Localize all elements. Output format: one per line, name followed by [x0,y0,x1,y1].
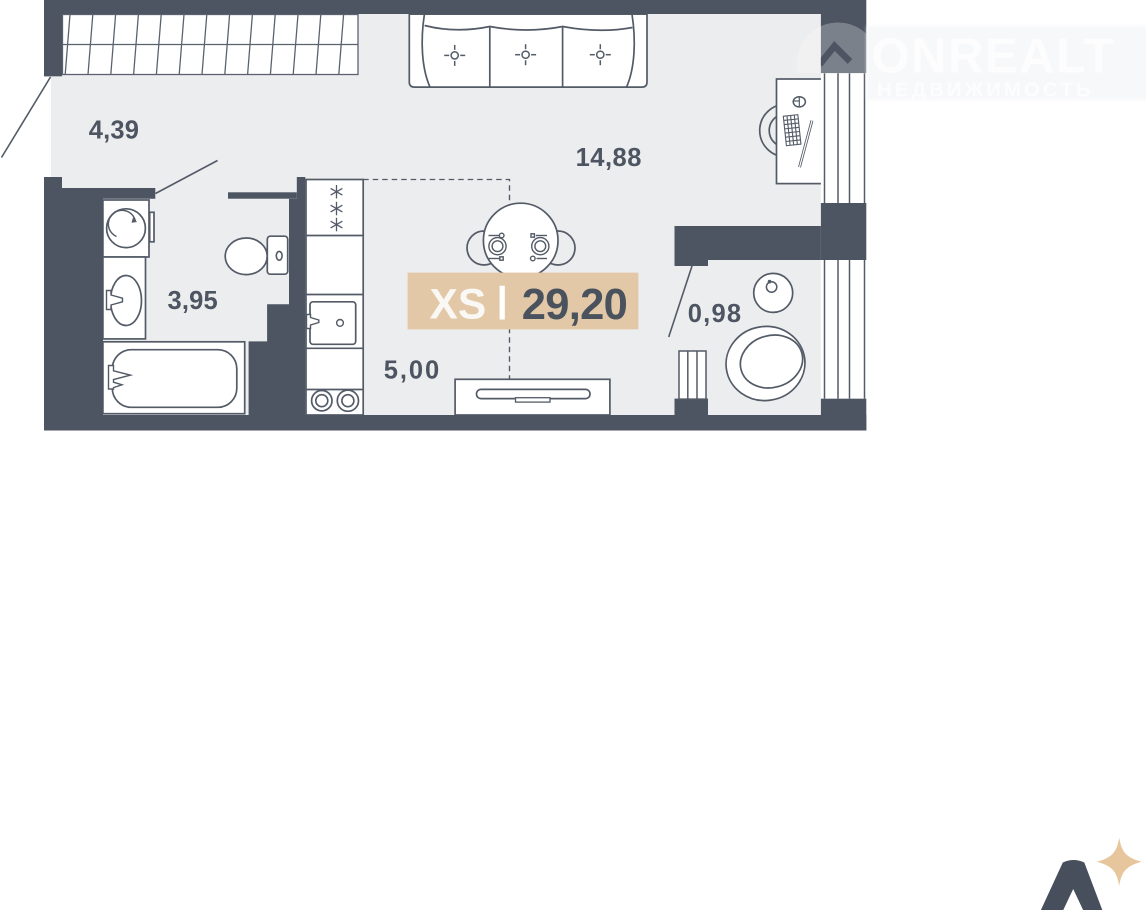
svg-text:29,20: 29,20 [522,281,627,329]
svg-text:XS: XS [430,281,487,328]
svg-text:ONREALT: ONREALT [872,30,1116,84]
svg-text:0,98: 0,98 [688,300,742,328]
svg-text:4,39: 4,39 [89,117,139,145]
svg-text:НЕДВИЖИМОСТЬ: НЕДВИЖИМОСТЬ [877,79,1093,102]
svg-text:5,00: 5,00 [384,356,441,384]
svg-text:14,88: 14,88 [576,144,642,172]
svg-text:3,95: 3,95 [168,287,218,315]
